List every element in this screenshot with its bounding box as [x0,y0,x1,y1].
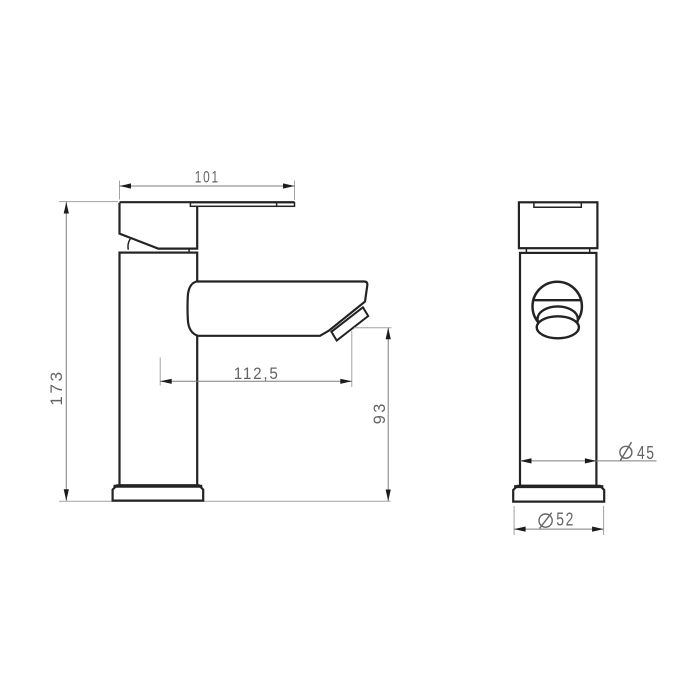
svg-text:112,5: 112,5 [234,364,280,383]
svg-text:101: 101 [195,167,220,186]
svg-text:45: 45 [637,442,656,463]
svg-text:93: 93 [370,401,389,424]
svg-text:52: 52 [556,510,575,530]
svg-text:173: 173 [47,369,66,405]
